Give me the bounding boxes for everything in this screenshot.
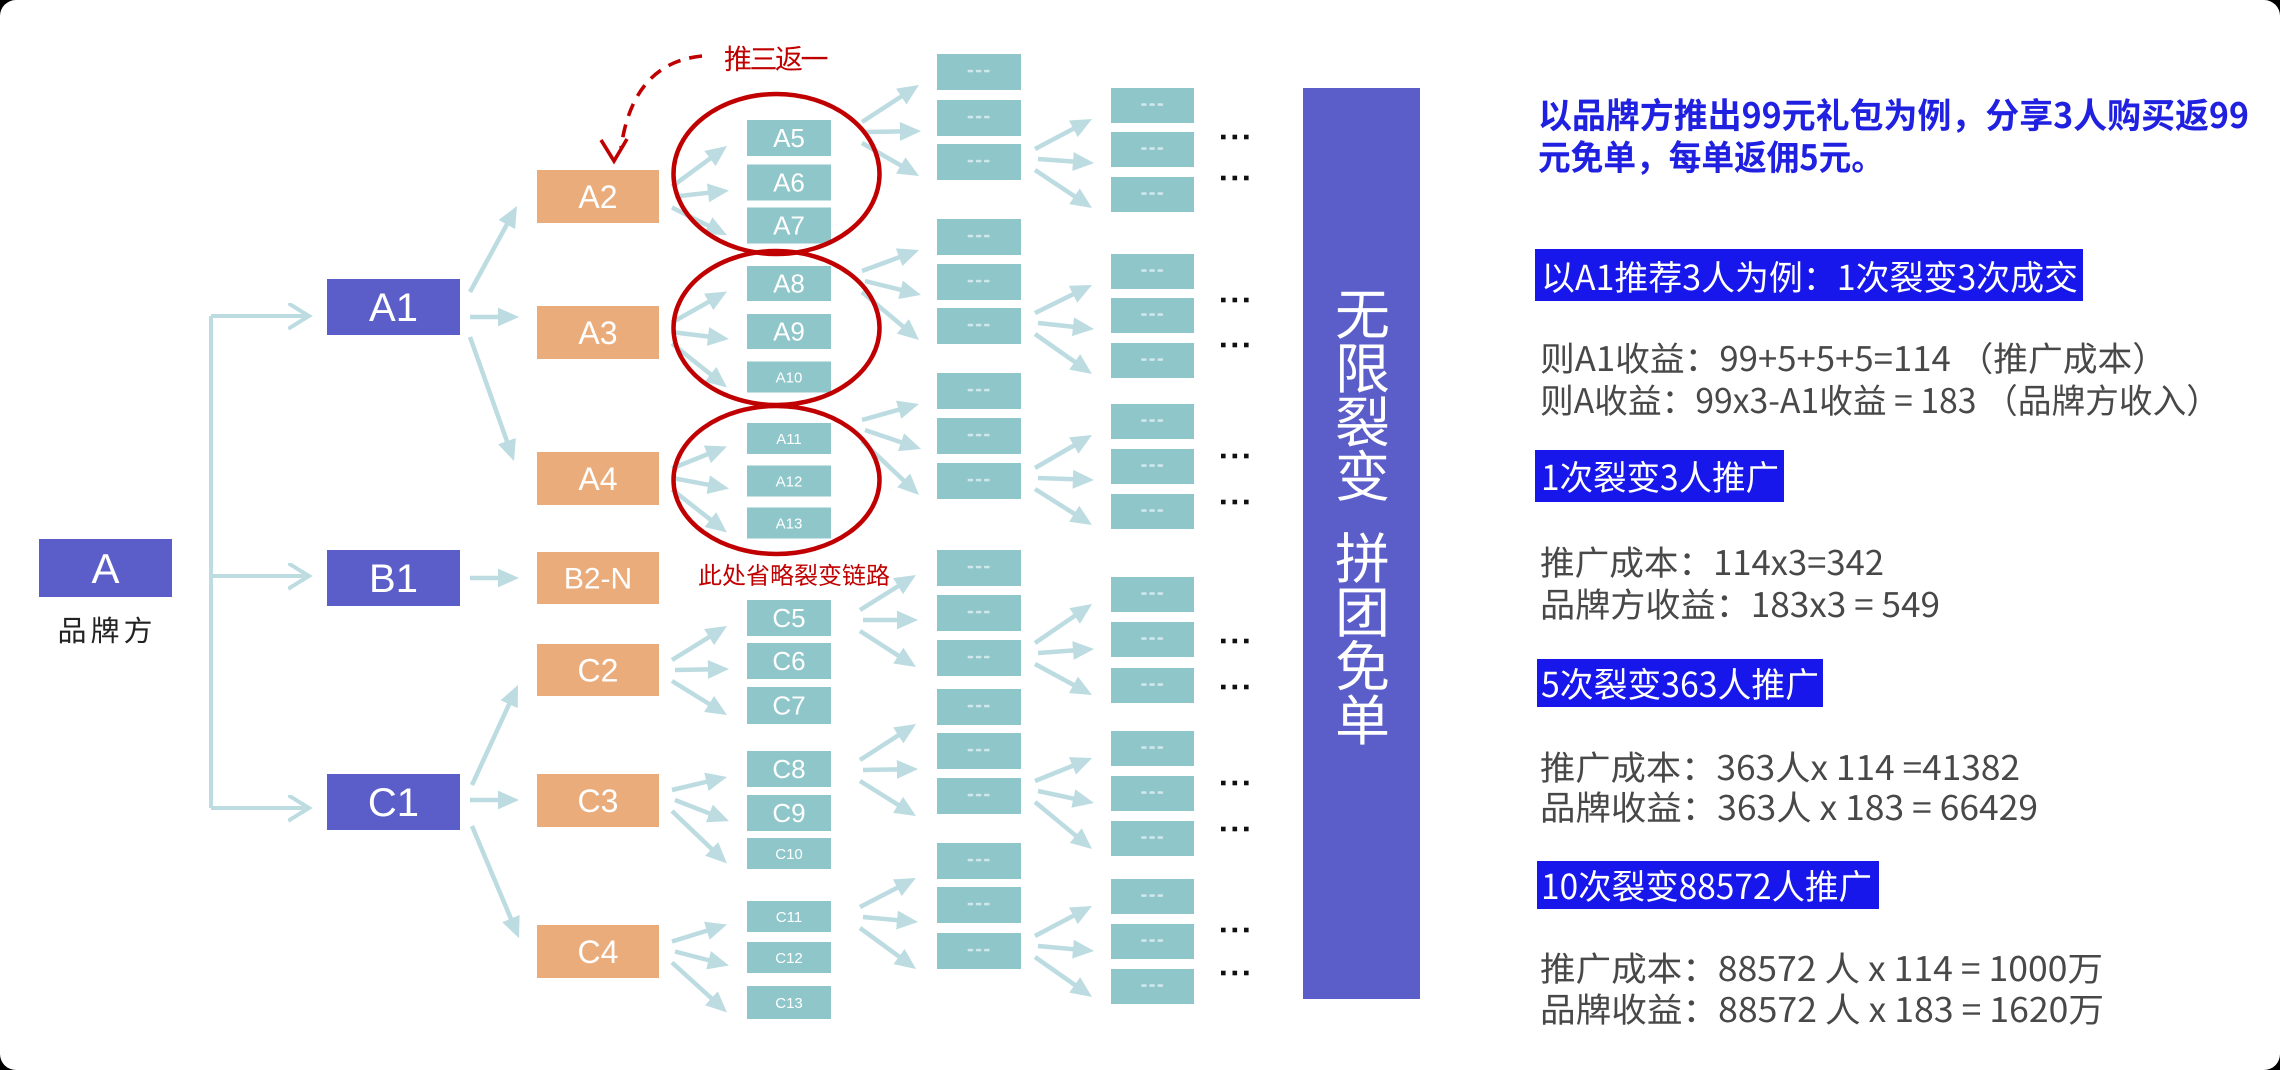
svg-text:B2-N: B2-N <box>564 563 632 596</box>
svg-text:A4: A4 <box>578 461 617 497</box>
svg-text:C9: C9 <box>772 798 805 828</box>
svg-text:C3: C3 <box>578 783 619 819</box>
svg-text:C6: C6 <box>772 646 805 676</box>
svg-text:A1: A1 <box>369 286 418 330</box>
svg-text:A13: A13 <box>776 515 803 532</box>
svg-text:C12: C12 <box>775 950 803 967</box>
svg-text:C7: C7 <box>772 691 805 721</box>
svg-text:A9: A9 <box>773 317 805 347</box>
svg-text:C1: C1 <box>368 781 419 825</box>
svg-text:A6: A6 <box>773 168 805 198</box>
svg-text:A3: A3 <box>578 315 617 351</box>
svg-text:C13: C13 <box>775 995 803 1012</box>
svg-text:A12: A12 <box>776 473 803 490</box>
svg-text:C5: C5 <box>772 603 805 633</box>
svg-text:A2: A2 <box>578 179 617 215</box>
svg-text:A11: A11 <box>776 431 802 448</box>
svg-text:C4: C4 <box>578 934 619 970</box>
svg-text:A7: A7 <box>773 211 805 241</box>
svg-text:C8: C8 <box>772 754 805 784</box>
svg-text:A: A <box>91 545 119 592</box>
svg-text:A5: A5 <box>773 123 805 153</box>
svg-text:C10: C10 <box>775 846 803 863</box>
svg-text:B1: B1 <box>369 557 418 601</box>
svg-text:C2: C2 <box>578 652 619 688</box>
svg-text:C11: C11 <box>776 909 802 926</box>
svg-text:A10: A10 <box>776 369 803 386</box>
svg-text:A8: A8 <box>773 269 805 299</box>
